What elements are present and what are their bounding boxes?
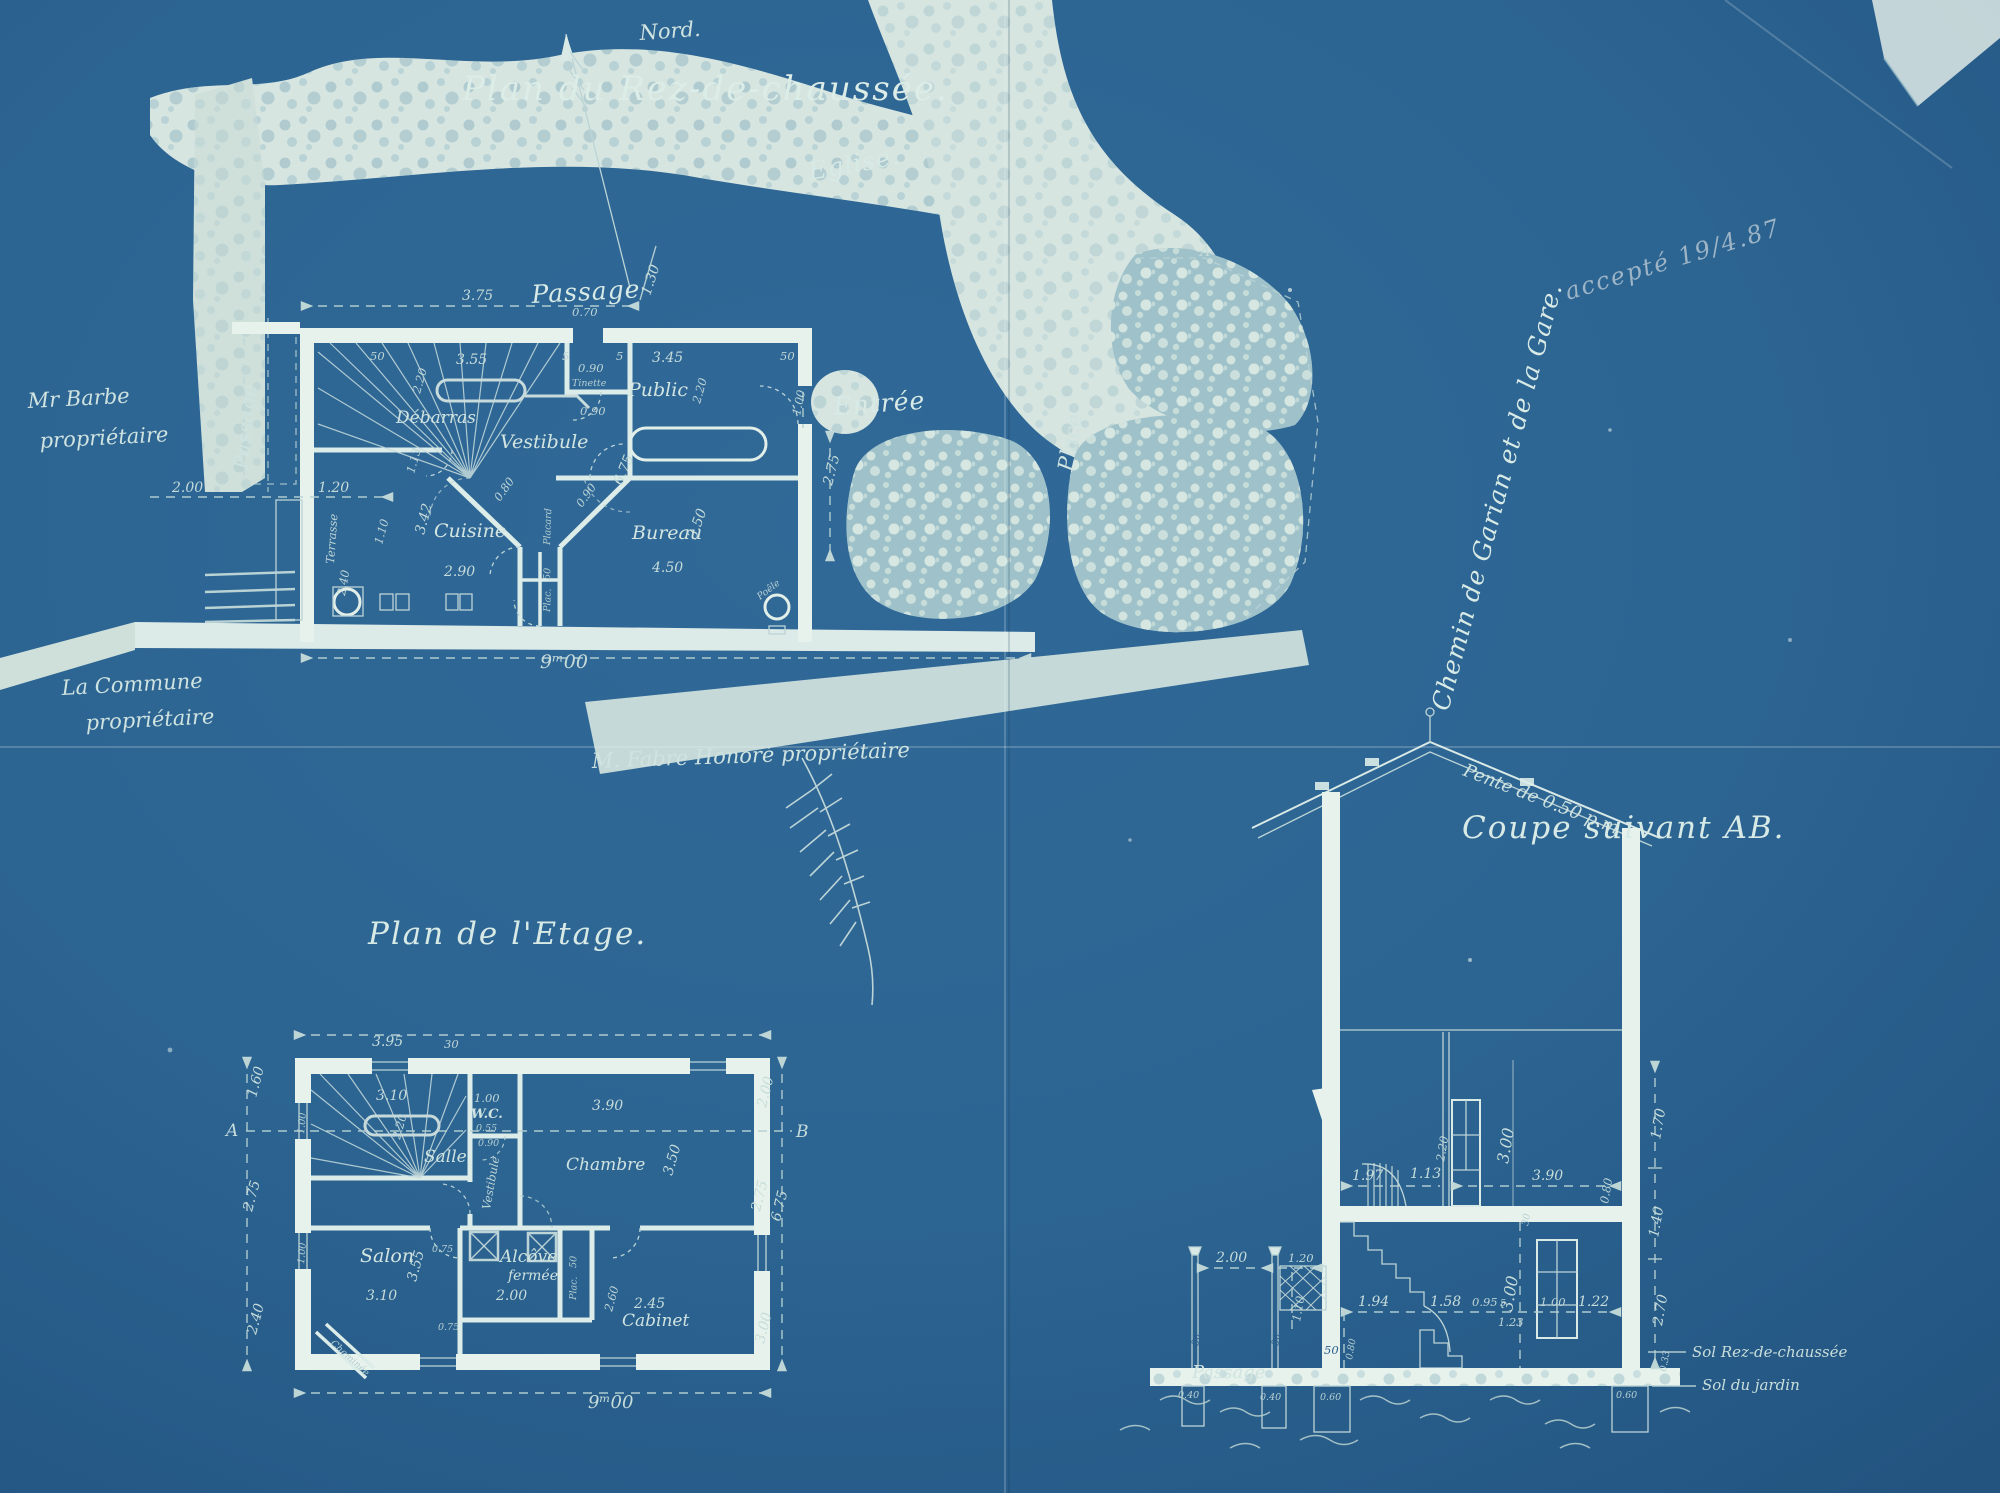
section-left-wall <box>1322 792 1340 1368</box>
gf-room-cuisine: Cuisine <box>434 520 506 542</box>
gf-dim: 1.20 <box>318 480 349 496</box>
gf-title: Plan du Rez-de-chaussée. <box>461 69 949 109</box>
uf-dim: 0.55 <box>476 1123 497 1134</box>
uf-dim: 3.90 <box>592 1098 623 1114</box>
uf-room-cabinet: Cabinet <box>622 1311 689 1331</box>
sec-dim: 1.22 <box>1578 1294 1609 1310</box>
sec-dim: 0.40 <box>1178 1390 1199 1401</box>
passage-top-label: Passage <box>530 274 641 309</box>
uf-dim: 0.90 <box>478 1138 499 1149</box>
sec-dim: 30 <box>1190 1333 1203 1347</box>
uf-dim: 0.75 <box>438 1322 459 1333</box>
uf-dim: 2.00 <box>495 1288 527 1304</box>
gf-dim: 3.75 <box>462 288 493 304</box>
gf-room-vestibule: Vestibule <box>500 431 588 453</box>
section-passage-label: Passage <box>1191 1362 1265 1383</box>
sec-dim: 50 <box>1324 1343 1339 1357</box>
uf-room-alcove-1: Alcôve <box>498 1247 557 1267</box>
uf-title: Plan de l'Etage. <box>367 916 647 952</box>
uf-room-chambre: Chambre <box>566 1155 645 1175</box>
uf-room-wc: W.C. <box>471 1107 503 1122</box>
sec-dim: 1.97 <box>1352 1168 1383 1184</box>
uf-dim: 1.00 <box>474 1091 500 1105</box>
blueprint-canvas: Plan du Rez-de-chaussée. Nord. Eglise. P… <box>0 0 2000 1493</box>
site-marker-a: A <box>1198 244 1210 260</box>
section-title: Coupe suivant AB. <box>1462 810 1785 846</box>
uf-marker-b: B <box>795 1122 809 1142</box>
gf-dim: 50 <box>370 349 385 363</box>
sec-dim: 30 <box>1270 1333 1283 1347</box>
sec-dim: 30 <box>1520 1213 1533 1227</box>
uf-dim: 0.75 <box>432 1244 453 1255</box>
sec-dim: 0.95 <box>1472 1295 1498 1309</box>
uf-dim: 1.00 <box>296 1112 309 1134</box>
uf-dim: 2.45 <box>633 1296 665 1312</box>
uf-room-salle: Salle <box>424 1147 467 1167</box>
sec-dim: 1.20 <box>1288 1251 1314 1265</box>
gf-room-plac: Plac. <box>542 588 554 613</box>
sec-dim: 1.58 <box>1430 1294 1461 1310</box>
gf-room-placard: Placard <box>542 508 554 546</box>
gf-room-tinette: Tinette <box>572 378 607 389</box>
north-label: Nord. <box>638 17 702 45</box>
uf-dim: 3.95 <box>372 1034 403 1050</box>
uf-room-alcove-2: fermée <box>507 1268 558 1284</box>
section-sol-jardin-label: Sol du jardin <box>1702 1376 1800 1394</box>
uf-dim: 30 <box>444 1037 459 1051</box>
uf-dim: 1.00 <box>296 1242 309 1264</box>
sec-dim: 0.60 <box>1320 1392 1341 1403</box>
gf-dim-total: 9ᵐ00 <box>540 651 588 673</box>
gf-plac-dim: 50 <box>542 568 553 580</box>
gf-dim: 0.90 <box>578 361 604 375</box>
gf-dim: 5 <box>562 349 569 363</box>
gf-dim: 3.55 <box>456 352 487 368</box>
sec-dim: 0.60 <box>1616 1390 1637 1401</box>
uf-dim: 3.10 <box>366 1288 397 1304</box>
sec-dim: 1.23 <box>1498 1315 1524 1329</box>
gf-room-debarras: Débarras <box>395 408 476 428</box>
uf-dim-total: 9ᵐ00 <box>588 1392 633 1413</box>
sec-dim: 1.00 <box>1540 1295 1566 1309</box>
gf-dim: 2.00 <box>171 480 203 496</box>
uf-dim: 3.10 <box>376 1088 407 1104</box>
section-right-wall <box>1622 828 1640 1368</box>
uf-dim: 50 <box>568 1256 579 1268</box>
gf-dim: 5 <box>616 349 623 363</box>
sec-dim: 1.13 <box>1410 1166 1441 1182</box>
sec-dim: 1.94 <box>1358 1294 1389 1310</box>
sec-dim: 0.40 <box>1260 1392 1281 1403</box>
gf-dim: 2.90 <box>443 564 475 580</box>
blueprint-sheet: Plan du Rez-de-chaussée. Nord. Eglise. P… <box>0 0 2000 1493</box>
sec-dim: 3.90 <box>1532 1168 1563 1184</box>
section-sol-rdc-label: Sol Rez-de-chaussée <box>1692 1343 1847 1361</box>
gf-dim: 0.70 <box>572 305 598 319</box>
gf-room-public: Public <box>627 379 688 401</box>
sec-dim: 2.00 <box>1215 1250 1247 1266</box>
uf-room-plac: Plac. <box>568 1276 580 1301</box>
gf-dim: 4.50 <box>651 560 683 576</box>
gf-dim: 50 <box>780 349 795 363</box>
gf-dim: 0.90 <box>580 404 606 418</box>
uf-marker-a: A <box>224 1121 238 1141</box>
uf-room-salon: Salon <box>360 1245 414 1267</box>
gf-dim: 3.45 <box>652 350 683 366</box>
section-floor-slab <box>1322 1206 1640 1222</box>
